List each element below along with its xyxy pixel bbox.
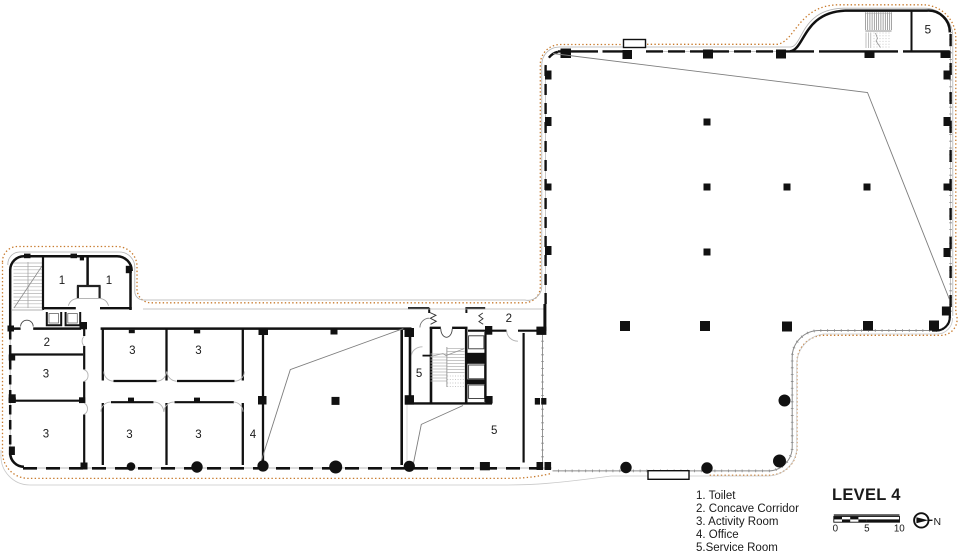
svg-text:3: 3	[195, 345, 201, 357]
svg-text:N: N	[934, 516, 942, 528]
svg-text:3: 3	[195, 429, 201, 441]
svg-text:1: 1	[106, 275, 112, 287]
svg-text:1. Toilet: 1. Toilet	[696, 490, 736, 502]
svg-text:2. Concave Corridor: 2. Concave Corridor	[696, 503, 799, 515]
svg-text:1: 1	[59, 275, 65, 287]
svg-text:3: 3	[43, 429, 49, 441]
svg-text:4. Office: 4. Office	[696, 529, 739, 541]
svg-text:LEVEL 4: LEVEL 4	[832, 486, 901, 504]
svg-text:4: 4	[250, 429, 257, 441]
svg-text:3: 3	[126, 429, 132, 441]
svg-text:0: 0	[833, 524, 839, 535]
svg-text:3: 3	[43, 369, 49, 381]
svg-text:5: 5	[416, 368, 422, 380]
svg-text:3. Activity Room: 3. Activity Room	[696, 516, 778, 528]
svg-text:2: 2	[506, 313, 512, 325]
svg-text:5: 5	[491, 425, 497, 437]
svg-text:10: 10	[894, 524, 905, 535]
svg-text:3: 3	[129, 345, 135, 357]
svg-text:5: 5	[864, 524, 870, 535]
svg-text:5.Service Room: 5.Service Room	[696, 542, 778, 554]
svg-text:2: 2	[44, 337, 50, 349]
svg-text:5: 5	[925, 23, 932, 37]
